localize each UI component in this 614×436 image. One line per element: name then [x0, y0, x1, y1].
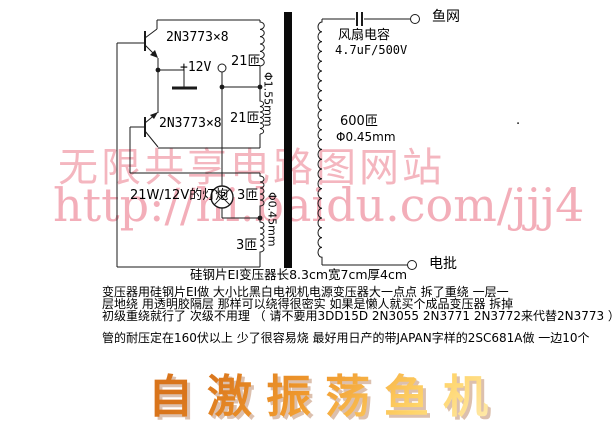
feedback-wire-gauge-label: Φ0.45mm: [266, 192, 278, 247]
electrode-terminal-icon: [408, 261, 417, 270]
power-terminal-icon: [218, 64, 226, 72]
primary-wire-gauge-label: Φ1.55mm: [262, 72, 274, 127]
electrode-terminal-label: 电批: [429, 257, 457, 272]
page-title-text: 自激振荡鱼机: [148, 370, 502, 423]
note-line-3: 初级重绕就行了 次级不用理 （ 请不要用3DD15D 2N3055 2N3771…: [102, 307, 614, 324]
stray-dot: .: [516, 114, 520, 128]
secondary-turns-label: 600匝: [340, 115, 378, 129]
page-title: 自激振荡鱼机 自激振荡鱼机: [148, 360, 502, 425]
transistor-bottom-label: 2N3773×8: [159, 117, 222, 131]
lamp-label: 21W/12V的灯炮: [130, 189, 228, 203]
primary-lower-turns-label: 21匝: [230, 112, 260, 126]
fishnet-terminal-icon: [411, 15, 420, 24]
schematic-page: 无限共享电路图网站 http://hi.baidu.com/jjj4: [0, 0, 614, 436]
npn-transistor-bottom-icon: [145, 112, 158, 147]
primary-upper-turns-label: 21匝: [231, 55, 261, 69]
feedback-lower-turns-label: 3匝: [236, 239, 257, 253]
transformer-core: [284, 12, 292, 268]
transformer-caption: 硅钢片EI变压器长8.3cm宽7cm厚4cm: [190, 268, 407, 281]
note-line-4: 管的耐压定在160伏以上 少了很容易烧 最好用日产的带JAPAN字样的2SC68…: [102, 329, 590, 346]
secondary-winding-coil: [318, 19, 322, 265]
secondary-wire-gauge-label: Φ0.45mm: [336, 131, 396, 144]
capacitor-name-label: 风扇电容: [338, 29, 390, 43]
capacitor-value-label: 4.7uF/500V: [335, 44, 407, 57]
supply-voltage-label: +12V: [180, 61, 211, 75]
npn-transistor-top-icon: [145, 29, 158, 58]
feedback-upper-turns-label: 3匝: [237, 189, 258, 203]
capacitor-icon: [322, 12, 410, 26]
fishnet-terminal-label: 鱼网: [432, 10, 460, 25]
transistor-top-label: 2N3773×8: [166, 31, 229, 45]
